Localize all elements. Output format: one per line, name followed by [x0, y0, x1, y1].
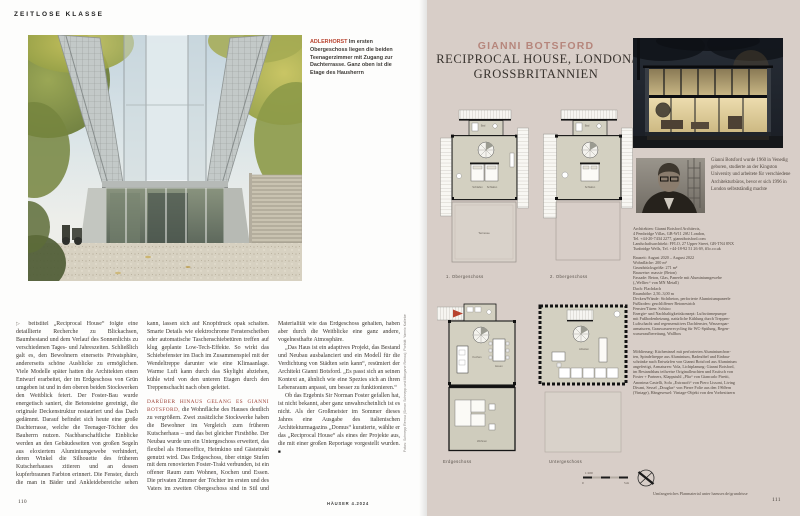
room-label-terrasse: Terrasse [478, 231, 490, 235]
project-facts-block: Bauzeit: August 2020 – August 2022 Wohnf… [633, 255, 798, 337]
page-seam [419, 0, 427, 516]
room-label-essen: Essen [495, 364, 503, 368]
main-photo-illustration [28, 35, 302, 281]
project-title-line1: RECIPROCAL HOUSE, LONDON/ [430, 52, 642, 67]
page-number-right: 111 [772, 497, 781, 503]
left-page: ZEITLOSE KLASSE [0, 0, 427, 516]
night-photo [633, 38, 783, 148]
article-end-mark: ■ [278, 449, 281, 454]
page-number-left: 110 [18, 499, 27, 505]
north-arrow-icon [638, 470, 654, 486]
contact-block: Architekten: Gianni Botsford Architects,… [633, 226, 798, 251]
plan-caption-1: 1. Obergeschoss [446, 274, 484, 279]
project-title-line2: GROSSBRITANNIEN [430, 67, 642, 82]
floor-plan-ground: Kochen Essen Wohnen [437, 300, 532, 460]
room-label-bad: Bad [585, 124, 590, 128]
main-photo [28, 35, 302, 281]
room-label-kochen: Kochen [472, 355, 482, 359]
photo-caption: ADLERHORST Im ersten Obergeschoss liegen… [310, 39, 400, 78]
magazine-spread: ZEITLOSE KLASSE [0, 0, 800, 516]
continuation-mark: ▷ [16, 322, 23, 327]
plan-caption-basement: Untergeschoss [549, 459, 582, 464]
magazine-footer: HÄUSER 4.2024 [327, 501, 369, 506]
article-paragraph: „Das Haus ist ein adaptives Projekt, das… [278, 345, 400, 393]
kicker: ZEITLOSE KLASSE [14, 11, 104, 18]
plan-scale-and-compass: 1:100 0 5 m [580, 466, 660, 494]
furnishing-block: Möblierung: Kücheninsel mit perforierten… [633, 349, 798, 395]
architect-bio: Gianni Botsford wurde 1960 in Venedig ge… [711, 157, 795, 193]
room-label-schlafen: Schlafen [487, 185, 498, 189]
room-label-schlafen: Schlafen [472, 185, 483, 189]
floor-plan-second-upper: Bad Schlafen [543, 98, 638, 278]
article-paragraph: Ob das Ergebnis Sir Norman Foster gefall… [278, 393, 400, 457]
architect-name: GIANNI BOTSFORD [430, 40, 642, 52]
photo-caption-lead: ADLERHORST [310, 39, 347, 45]
room-label-schlafen: Schlafen [585, 185, 596, 189]
plan-caption-ground: Erdgeschoss [443, 459, 472, 464]
scale-start-label: 0 [582, 481, 584, 485]
scale-end-label: 5 m [624, 481, 629, 485]
plan-material-note: Umfangreiches Planmaterial unter haeuser… [653, 491, 748, 496]
room-label-arbeiten: Arbeiten [579, 347, 590, 351]
plan-caption-2: 2. Obergeschoss [550, 274, 588, 279]
article-p4: Ob das Ergebnis Sir Norman Foster gefall… [278, 393, 400, 447]
article-body: ▷ beitstitel „Reciprocal House“ folgte e… [16, 321, 400, 495]
scale-ratio-label: 1:100 [585, 471, 593, 475]
room-label-bad: Bad [481, 124, 486, 128]
architect-portrait [636, 158, 705, 213]
project-title-block: GIANNI BOTSFORD RECIPROCAL HOUSE, LONDON… [430, 40, 642, 82]
floor-plan-basement: Arbeiten [537, 300, 632, 460]
floor-plan-first-upper: Bad Schlafen Schlafen Terrasse [439, 98, 534, 278]
room-label-wohnen: Wohnen [477, 439, 487, 443]
photo-credit: Fotos: Schnepp Renou (Simon Schnepp und … [403, 330, 407, 452]
